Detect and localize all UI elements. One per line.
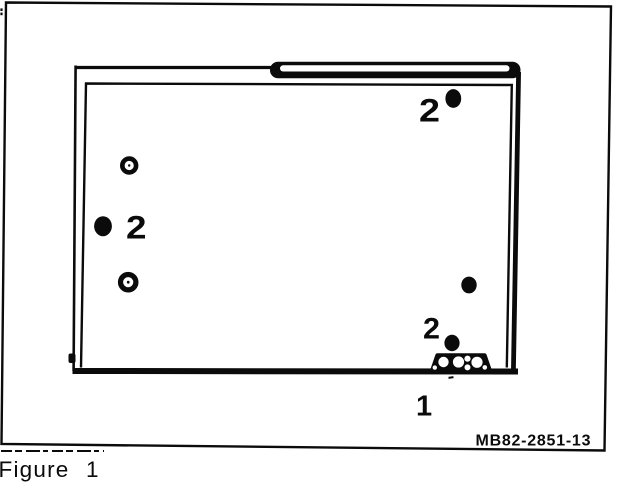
svg-text:2: 2 xyxy=(126,210,147,246)
svg-text:MB82-2851-13: MB82-2851-13 xyxy=(476,433,592,450)
svg-text:2: 2 xyxy=(419,93,440,129)
svg-text:1: 1 xyxy=(416,391,432,423)
svg-text:1: 1 xyxy=(86,457,99,482)
svg-text:2: 2 xyxy=(423,312,440,345)
svg-text:Figure: Figure xyxy=(0,457,69,482)
